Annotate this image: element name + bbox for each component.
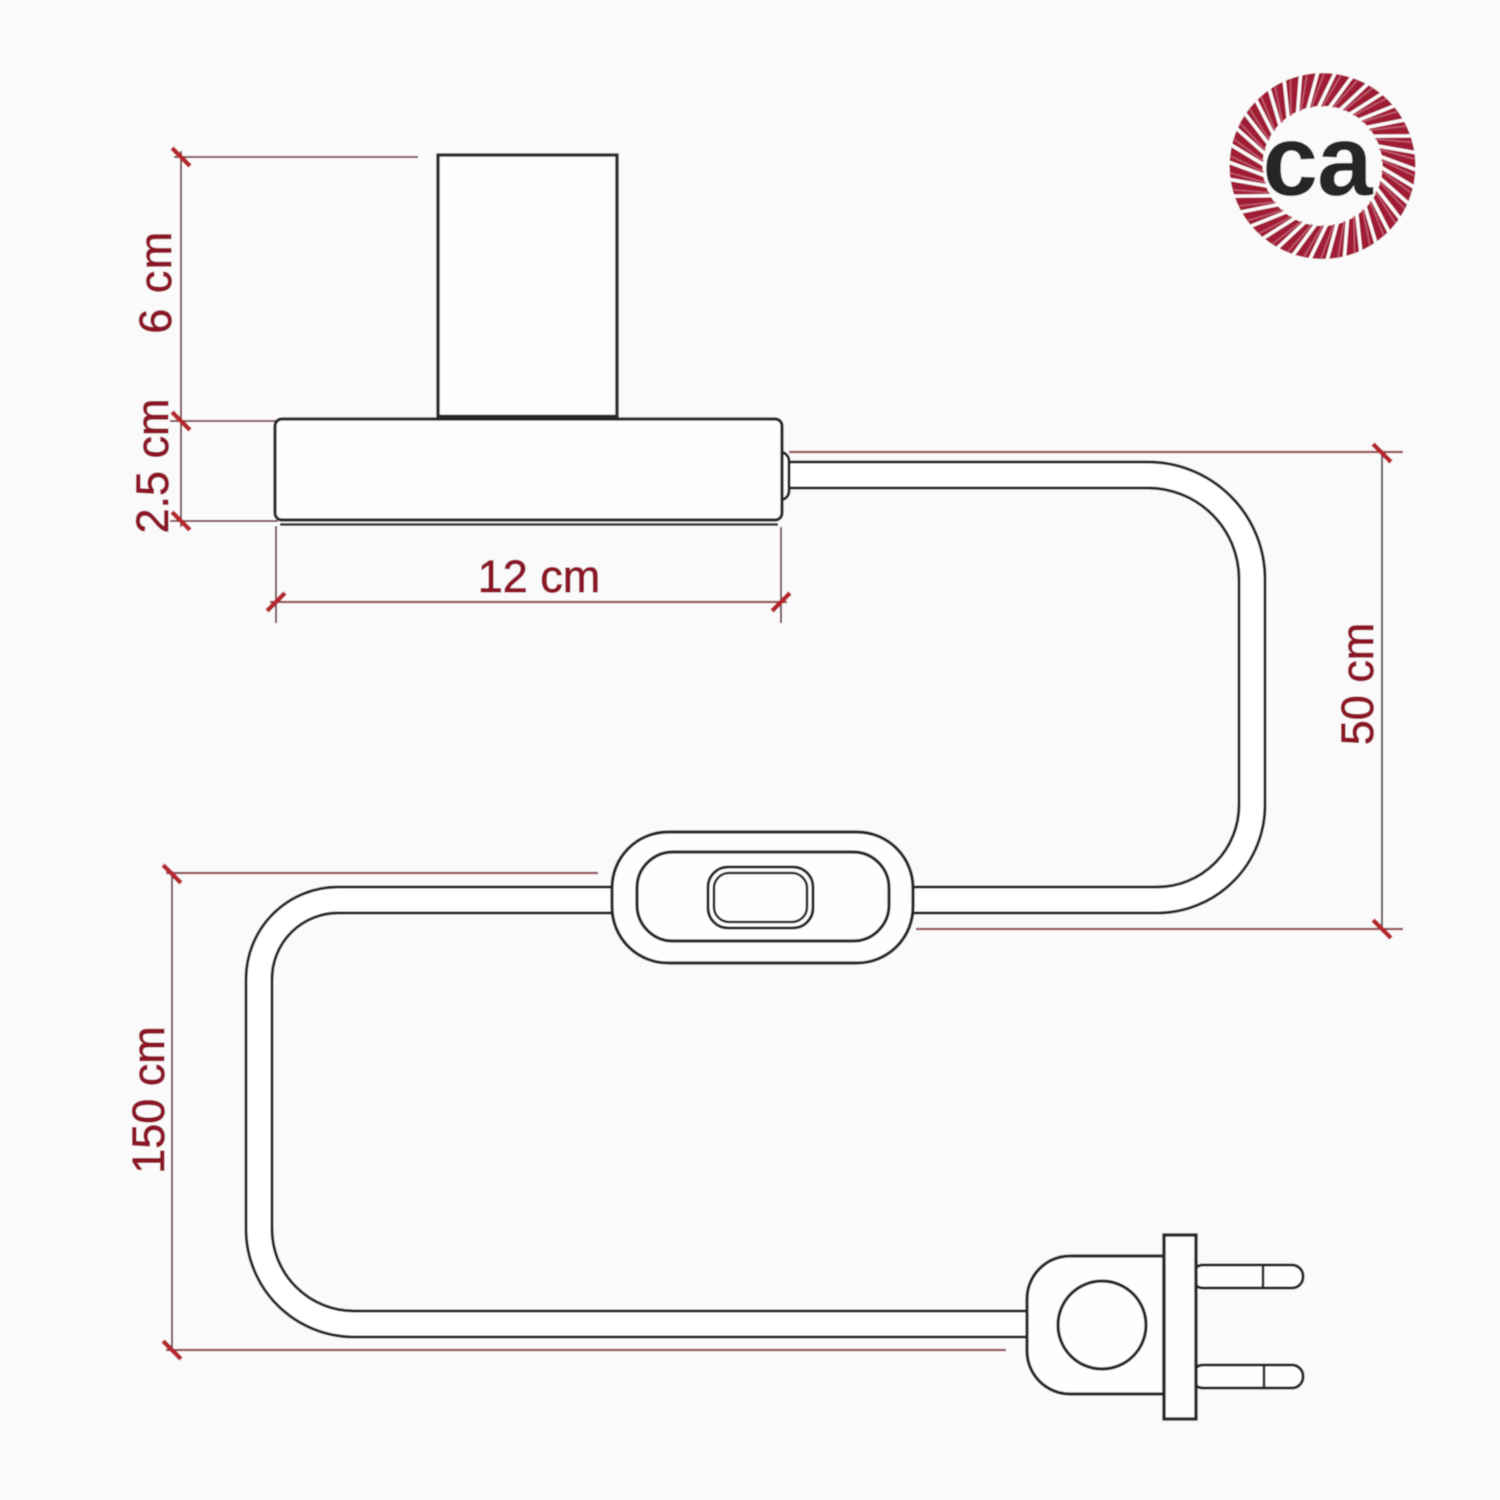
svg-text:50 cm: 50 cm bbox=[1332, 623, 1383, 746]
svg-text:12 cm: 12 cm bbox=[478, 551, 601, 602]
svg-text:ca: ca bbox=[1262, 105, 1374, 217]
svg-text:6 cm: 6 cm bbox=[130, 230, 181, 334]
svg-text:150 cm: 150 cm bbox=[123, 1026, 174, 1174]
svg-text:2.5 cm: 2.5 cm bbox=[127, 398, 178, 533]
